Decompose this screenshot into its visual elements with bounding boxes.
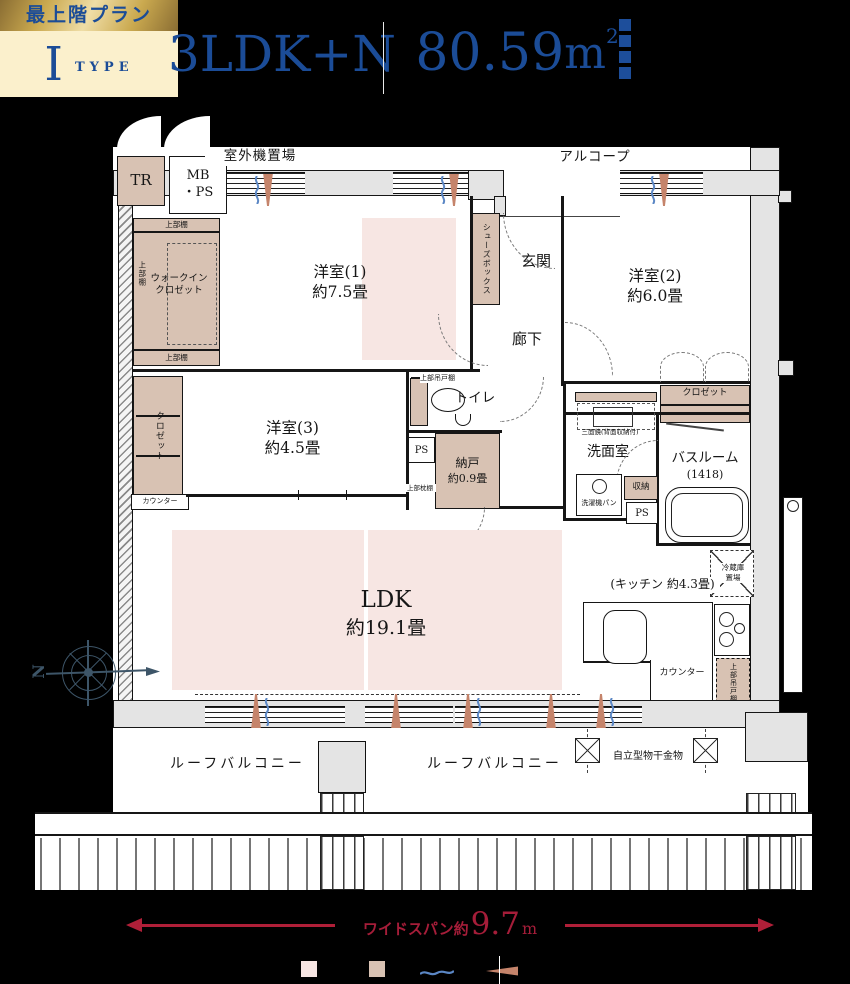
breeze-wave-icon [607, 698, 617, 730]
compass-hub [84, 668, 93, 677]
window [552, 706, 642, 723]
hallway-label: 廊下 [500, 330, 554, 350]
railing-posts [40, 838, 808, 890]
burner [719, 612, 734, 627]
legend-airflow-cone-icon [486, 966, 518, 976]
upper-shelf-label: 上部棚 [165, 220, 188, 230]
right-outer-wall [750, 147, 780, 703]
area-figure: 80.59 m 2 [418, 12, 616, 96]
badge-body: I TYPE [0, 31, 178, 97]
legend [295, 955, 555, 984]
wall-line [656, 543, 750, 546]
stove-icon [714, 604, 750, 656]
bedroom3-closet: クロゼット [133, 376, 183, 496]
closet-divider [136, 455, 180, 457]
balcony-corner-block [745, 712, 808, 762]
leader-line [411, 377, 420, 378]
bedroom2-closet: クロゼット [660, 385, 750, 423]
legend-divider-line [499, 956, 500, 984]
dimension-label: ワイドスパン約 9.7 m [335, 902, 565, 944]
plan-badge: 最上階プラン I TYPE [0, 0, 178, 97]
dimension-arrowhead-right [758, 918, 774, 932]
outdoor-unit-label: 室外機置場 [205, 148, 315, 166]
vanity-bowl [593, 407, 633, 427]
entrance-porch [500, 170, 620, 217]
storage-room-name: 納戸 [455, 456, 479, 472]
closet2-label: クロゼット [661, 388, 749, 400]
pipe-space: PS [408, 437, 435, 463]
toilet-cabinet [410, 378, 428, 426]
door-swing-fan [117, 116, 161, 149]
dot-square [619, 19, 631, 31]
side-counter-label: カウンター [143, 497, 178, 506]
wic-line2: クロゼット [144, 285, 214, 297]
dimension-prefix: ワイドスパン約 [363, 920, 469, 940]
dimension-unit: m [522, 919, 537, 940]
pipe-space-2: PS [626, 502, 658, 524]
compass-north-label: N [29, 664, 50, 679]
bedroom2-name: 洋室(2) [605, 266, 705, 286]
dot-square [619, 51, 631, 63]
type-letter: I [44, 41, 63, 88]
trunk-room-label: TR [130, 171, 151, 191]
vanity-top [575, 392, 657, 402]
window [205, 706, 345, 723]
wall-line [561, 196, 564, 386]
toilet-label: トイレ [452, 390, 498, 408]
kitchen-counter-label: カウンター [658, 668, 706, 680]
washroom-storage: 収納 [624, 476, 658, 500]
side-counter: カウンター [131, 494, 189, 510]
wall-line [186, 494, 408, 497]
bedroom1-size: 約7.5畳 [290, 282, 390, 302]
bathtub-inner [671, 493, 743, 537]
kitchen-upper-label: 上部吊戸棚 [728, 663, 737, 703]
bedroom1-name: 洋室(1) [290, 262, 390, 282]
roof-balcony-left-label: ルーフバルコニー [165, 755, 310, 773]
wic-line1: ウォークイン [144, 273, 214, 285]
dotted-separator [619, 19, 631, 81]
storage-room: 納戸 約0.9畳 [435, 433, 500, 509]
breeze-wave-icon [438, 176, 448, 208]
center-column [318, 741, 366, 793]
walk-in-closet: 上部棚 ウォークイン クロゼット [133, 232, 220, 350]
bathtub-icon [665, 487, 749, 543]
ldk-size: 約19.1畳 [336, 616, 436, 641]
burner [719, 632, 734, 647]
closet-bifold-arc [705, 352, 749, 382]
bedroom2-label: 洋室(2) 約6.0畳 [605, 266, 705, 306]
ldk-label: LDK 約19.1畳 [336, 586, 436, 641]
tick [346, 490, 347, 500]
closet-bifold-arc [660, 352, 704, 382]
closet3-label: クロゼット [152, 411, 164, 461]
legend-pink-swatch [301, 961, 317, 977]
upper-shelf-top: 上部棚 [133, 218, 220, 232]
right-wall-notch [778, 360, 794, 376]
pipe-joint-icon [787, 500, 799, 512]
badge-gold-bar: 最上階プラン [0, 0, 178, 31]
kitchen-sink-icon [603, 610, 647, 664]
ps-label: PS [415, 444, 429, 457]
balcony-opening-line [195, 694, 580, 695]
compass-pointer-icon [146, 667, 160, 676]
bathroom-size: (1418) [662, 468, 748, 482]
wall-line [563, 383, 566, 520]
bathroom-name: バスルーム [662, 450, 748, 468]
alcove-label: アルコープ [545, 149, 645, 167]
breeze-wave-icon [474, 698, 484, 730]
toilet-upper-shelf-label: 上部吊戸棚 [420, 374, 480, 383]
laundry-fixture-icon [575, 738, 600, 763]
door-swing-fan [164, 116, 210, 149]
wic-label: ウォークイン クロゼット [144, 273, 214, 298]
bedroom1-label: 洋室(1) 約7.5畳 [290, 262, 390, 302]
window [393, 172, 480, 194]
washer-pan-label: 洗濯機パン [577, 499, 621, 508]
dimension-value: 9.7 [471, 904, 520, 944]
burner [734, 623, 745, 634]
badge-top-label: 最上階プラン [26, 3, 152, 28]
right-column-base-over [746, 836, 796, 890]
ldk-name: LDK [336, 586, 436, 616]
bedroom3-label: 洋室(3) 約4.5畳 [245, 418, 340, 458]
type-word: TYPE [75, 60, 134, 77]
right-wall-notch [778, 190, 792, 203]
storage-label: 収納 [632, 482, 649, 493]
bedroom3-name: 洋室(3) [245, 418, 340, 438]
washer-pan: 洗濯機パン [576, 474, 622, 516]
bathroom-label: バスルーム (1418) [662, 450, 748, 482]
window [365, 706, 453, 723]
area-sup: 2 [606, 23, 619, 49]
bedroom3-size: 約4.5畳 [245, 438, 340, 458]
legend-breeze-wave-icon [420, 964, 454, 983]
left-outer-wall [118, 192, 133, 702]
storage-room-size: 約0.9畳 [448, 472, 488, 486]
area-unit: m [564, 25, 606, 82]
floor-plan-page: 最上階プラン I TYPE 3LDK+N 80.59 m 2 [0, 0, 850, 984]
breeze-wave-icon [262, 698, 272, 730]
ps-label: PS [635, 507, 649, 520]
bedroom2-size: 約6.0畳 [605, 286, 705, 306]
railing-rail [35, 812, 812, 814]
trunk-room: TR [117, 156, 165, 206]
mirror-label: 三面鏡(背面収納付) [570, 428, 650, 436]
roof-balcony-right-label: ルーフバルコニー [422, 755, 567, 773]
shoes-box-label: シューズボックス [481, 223, 491, 295]
upper-shelf-label: 上部棚 [165, 353, 188, 363]
closet-divider [136, 415, 180, 417]
dot-square [619, 35, 631, 47]
compass: N [30, 634, 165, 716]
laundry-fixture-icon [693, 738, 718, 763]
railing-rail [35, 834, 812, 836]
drain-pipe [783, 497, 803, 693]
washer-drain-icon [592, 479, 607, 494]
legend-tan-swatch [369, 961, 385, 977]
mb-label: MB [187, 168, 210, 185]
shoes-box: シューズボックス [472, 213, 500, 305]
dot-square [619, 67, 631, 79]
kitchen-label: (キッチン 約4.3畳) [605, 577, 720, 593]
plan-name: 3LDK+N [183, 12, 381, 96]
wall-line [500, 506, 564, 509]
center-column-base-over [320, 836, 364, 890]
ps-label: ・PS [183, 185, 214, 202]
wall-line [133, 369, 480, 372]
dimension-arrowhead-left [126, 918, 142, 932]
breeze-wave-icon [648, 176, 658, 208]
laundry-label: 自立型物干金物 [606, 750, 690, 763]
upper-shelf-bottom: 上部棚 [133, 350, 220, 366]
upper-pillow-shelf-label: 上部枕棚 [404, 484, 436, 492]
fridge-line1: 冷蔵庫 [714, 563, 752, 573]
breeze-wave-icon [252, 176, 262, 208]
header-divider [383, 22, 384, 94]
tick [298, 490, 299, 500]
closet-divider [661, 404, 749, 406]
area-value: 80.59 [415, 20, 564, 88]
